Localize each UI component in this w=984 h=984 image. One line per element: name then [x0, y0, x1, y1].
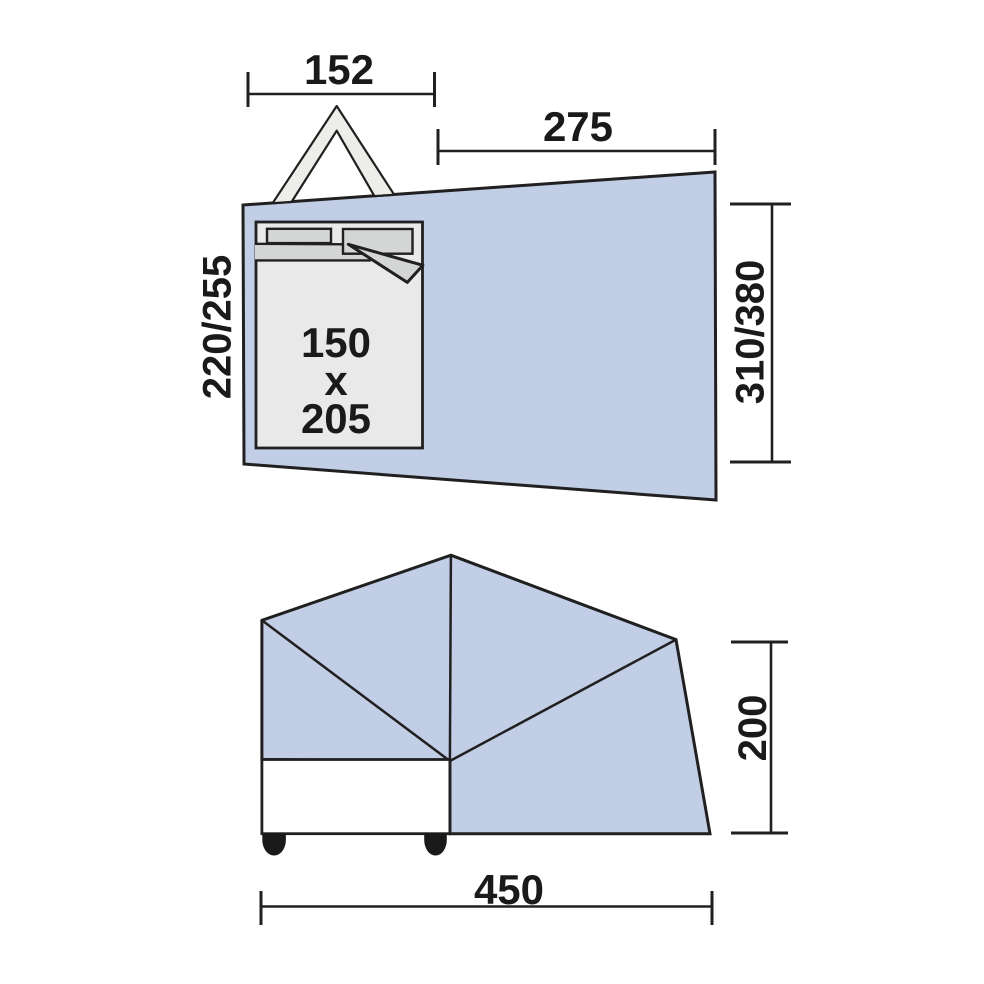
svg-text:205: 205 [301, 395, 371, 442]
svg-text:220/255: 220/255 [196, 255, 240, 400]
svg-text:200: 200 [731, 695, 775, 762]
svg-text:450: 450 [474, 866, 544, 913]
svg-text:310/380: 310/380 [729, 260, 773, 405]
svg-text:275: 275 [543, 103, 613, 150]
svg-text:152: 152 [304, 46, 374, 93]
